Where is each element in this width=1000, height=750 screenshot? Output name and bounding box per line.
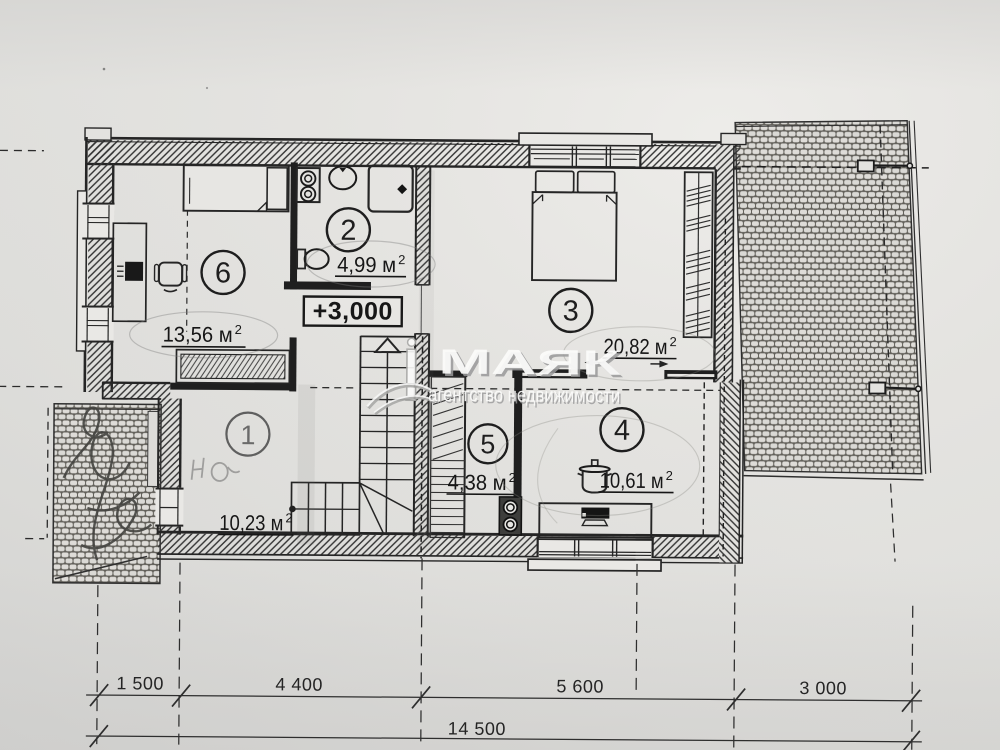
svg-text:4,99 м: 4,99 м	[337, 253, 396, 277]
svg-text:2: 2	[666, 468, 673, 483]
svg-text:14 500: 14 500	[448, 719, 506, 739]
svg-text:3 000: 3 000	[799, 678, 847, 698]
svg-text:МАЯК: МАЯК	[438, 342, 621, 382]
svg-text:2: 2	[235, 322, 242, 337]
svg-text:1: 1	[240, 420, 255, 450]
svg-text:5: 5	[480, 429, 495, 459]
svg-text:2: 2	[509, 470, 516, 485]
svg-text:3: 3	[563, 295, 579, 327]
svg-text:агентство недвижимости: агентство недвижимости	[428, 384, 620, 407]
svg-text:10,23 м: 10,23 м	[219, 511, 283, 535]
svg-text:4 400: 4 400	[275, 674, 323, 694]
svg-text:5 600: 5 600	[556, 676, 604, 696]
svg-text:10,61 м: 10,61 м	[600, 469, 664, 493]
svg-text:13,56 м: 13,56 м	[163, 323, 233, 347]
svg-text:2: 2	[670, 334, 677, 349]
svg-text:1 500: 1 500	[116, 673, 164, 693]
svg-text:2: 2	[398, 252, 405, 267]
svg-text:2: 2	[285, 510, 292, 525]
svg-text:6: 6	[215, 257, 231, 289]
svg-text:+3,000: +3,000	[313, 297, 393, 326]
svg-text:4: 4	[614, 415, 630, 447]
